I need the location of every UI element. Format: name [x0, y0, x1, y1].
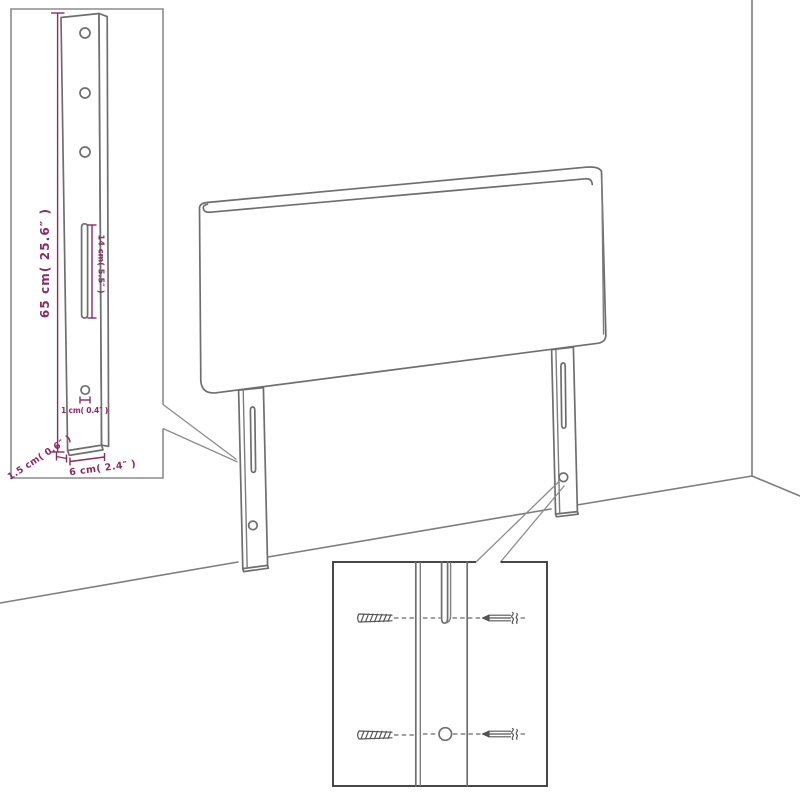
floor-edge-left-segment-3 — [0, 562, 238, 603]
height-dimension-label: 65 cm( 25.6″ ) — [38, 208, 52, 318]
pointed-screw-icon-bottom — [453, 729, 527, 740]
slot-dimension-label: 14 cm( 5.5″ ) — [97, 235, 107, 294]
screw-inset-leader-left — [476, 481, 560, 562]
wood-screw-icon-bottom — [358, 731, 415, 739]
panel-outline — [200, 167, 606, 393]
hole-dimension-label: 1 cm( 0.4″ ) — [61, 406, 108, 415]
floor-edge-left-segment-1 — [577, 476, 752, 505]
floor-edge-right — [752, 476, 800, 496]
callout-leader-lines — [163, 405, 565, 563]
thickness-dimension-line — [57, 457, 67, 459]
leg-inset-leader-bottom — [163, 429, 238, 463]
screw-inset-leg — [416, 562, 467, 786]
pointed-screw-icon-top — [453, 613, 528, 624]
left-leg-body — [239, 388, 268, 569]
inset-leg-slot — [442, 562, 448, 623]
headboard-panel — [200, 167, 606, 393]
inset-leg-hole — [439, 728, 452, 741]
floor-edge-left-segment-2 — [268, 509, 551, 557]
left-leg — [239, 388, 269, 572]
leg-detail-side-face — [99, 14, 109, 447]
leg-inset-leader-top — [163, 405, 237, 460]
width-dimension-line — [70, 457, 105, 462]
width-dimension-label: 6 cm( 2.4″ ) — [69, 459, 137, 479]
right-leg — [552, 347, 579, 517]
diagram-canvas: 65 cm( 25.6″ ) 14 cm( 5.5″ ) 1 cm( 0.4″ … — [0, 0, 800, 800]
wood-screw-icon-top — [358, 614, 415, 622]
screw-inset-border — [333, 562, 547, 786]
screw-inset-leader-right — [501, 486, 565, 563]
screw-detail-inset — [333, 562, 547, 786]
headboard-dimension-diagram: 65 cm( 25.6″ ) 14 cm( 5.5″ ) 1 cm( 0.4″ … — [0, 0, 800, 800]
leg-dimension-inset: 65 cm( 25.6″ ) 14 cm( 5.5″ ) 1 cm( 0.4″ … — [6, 9, 163, 483]
